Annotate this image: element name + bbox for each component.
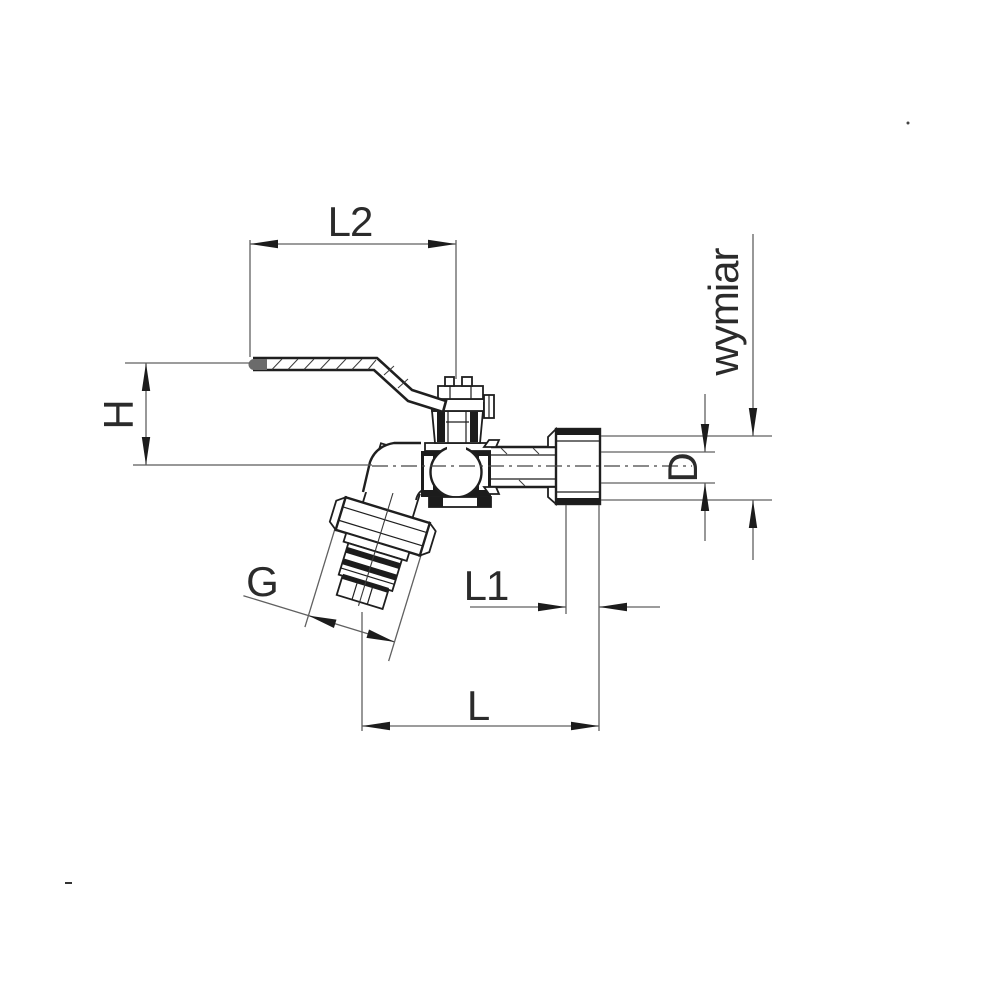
joint-flange-top — [484, 440, 499, 447]
valve-ball — [431, 447, 482, 498]
dimension-D: D — [601, 394, 715, 541]
label-L2: L2 — [328, 198, 373, 245]
wymiar-arrowhead-down — [749, 408, 757, 436]
label-L: L — [467, 682, 489, 729]
stem-slot — [447, 444, 466, 454]
g-arrowhead-left — [307, 611, 336, 628]
dimension-L1: L1 — [464, 505, 660, 731]
artifact-dash-bottom-left — [65, 882, 72, 884]
h-arrowhead-top — [142, 363, 150, 391]
l-arrowhead-right — [571, 722, 599, 730]
l1-arrowhead-left — [538, 603, 566, 611]
valve-body — [421, 443, 494, 507]
nut-chamfer-top-left — [548, 429, 556, 447]
dimension-wymiar: wymiar — [601, 234, 772, 560]
nut-top-band — [556, 429, 600, 435]
pipe-fill — [491, 447, 558, 487]
l2-arrowhead-right — [428, 240, 456, 248]
label-L1: L1 — [464, 562, 509, 609]
g-arrowhead-right — [366, 630, 395, 647]
wymiar-arrowhead-up — [749, 500, 757, 528]
l-arrowhead-left — [362, 722, 390, 730]
g-extension-line-left — [305, 526, 336, 627]
valve-drawing-svg: L2 H wymiar D L1 — [0, 0, 1000, 1000]
d-arrowhead-down — [701, 424, 709, 452]
technical-drawing-page: L2 H wymiar D L1 — [0, 0, 1000, 1000]
nut-chamfer-bottom-left — [548, 487, 556, 504]
label-D: D — [659, 453, 706, 482]
inlet-pipe — [484, 440, 558, 494]
label-H: H — [95, 400, 142, 429]
artifact-dot-top-right — [907, 122, 910, 125]
handle-lever — [249, 358, 446, 412]
bottom-flange-cap — [429, 497, 443, 507]
label-wymiar: wymiar — [700, 247, 747, 376]
elbow-fill — [363, 443, 421, 494]
handle-outline — [253, 358, 446, 412]
h-arrowhead-bottom — [142, 437, 150, 465]
nut-bottom-band — [556, 498, 600, 504]
stem-castellation — [462, 377, 472, 386]
l1-arrowhead-right — [599, 603, 627, 611]
dimension-H: H — [95, 363, 250, 465]
packing-seal-right — [470, 412, 478, 442]
label-G: G — [246, 558, 278, 605]
stem-castellation — [445, 377, 454, 386]
handle-end-cap — [249, 359, 267, 370]
dimension-L2: L2 — [250, 198, 456, 379]
l2-arrowhead-left — [250, 240, 278, 248]
bottom-flange-cap — [477, 497, 491, 507]
d-arrowhead-up — [701, 483, 709, 511]
packing-nut — [438, 386, 483, 399]
packing-seal-left — [437, 412, 445, 442]
